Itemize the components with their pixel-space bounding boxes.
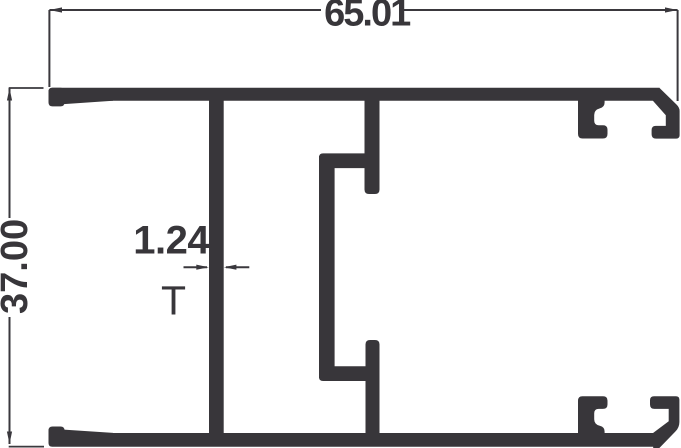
svg-text:37.00: 37.00 (0, 219, 36, 314)
svg-text:65.01: 65.01 (324, 0, 411, 35)
svg-text:T: T (161, 278, 186, 324)
svg-text:1.24: 1.24 (133, 219, 210, 263)
